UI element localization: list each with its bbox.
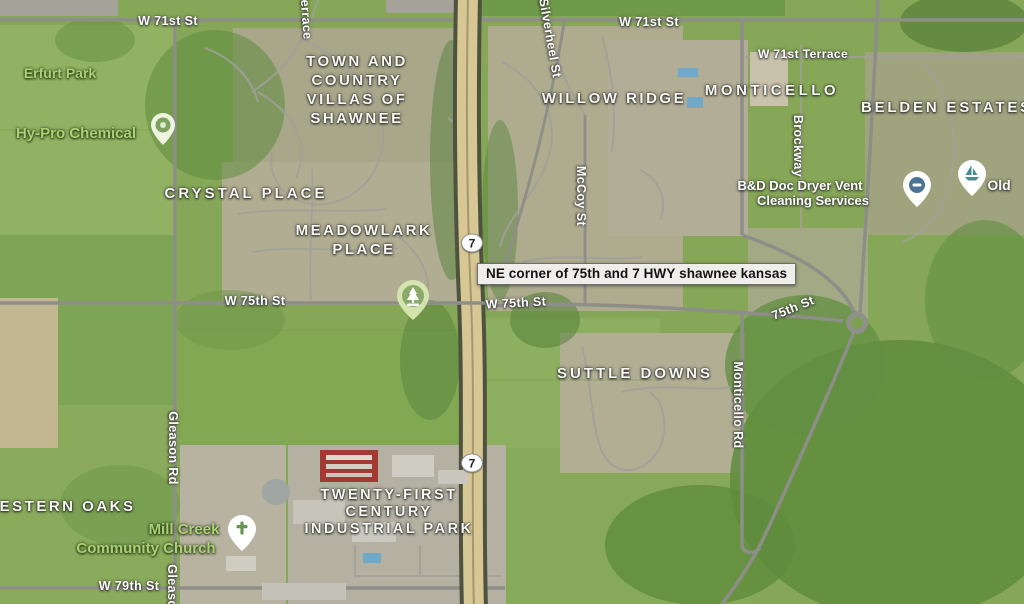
- hy-pro-chemical-pin[interactable]: [150, 112, 176, 151]
- park-pin[interactable]: [396, 279, 430, 326]
- highway-7-shield-south: 7: [461, 454, 483, 473]
- bd-doc-business-pin[interactable]: [902, 170, 932, 213]
- green-dot-pin-icon: [150, 112, 176, 146]
- highway-7-shield-north: 7: [461, 234, 483, 253]
- sailboat-pin-icon: [957, 159, 987, 197]
- business-dot-pin-icon: [902, 170, 932, 208]
- tree-park-pin-icon: [396, 279, 430, 321]
- location-tooltip: NE corner of 75th and 7 HWY shawnee kans…: [477, 263, 796, 285]
- terrain-layer: [0, 0, 1024, 604]
- roundabout: [849, 315, 866, 332]
- satellite-map-canvas[interactable]: TOWN AND COUNTRY VILLAS OF SHAWNEE WILLO…: [0, 0, 1024, 604]
- old-poi-pin[interactable]: [957, 159, 987, 202]
- church-cross-pin-icon: [227, 514, 257, 552]
- mill-creek-church-pin[interactable]: [227, 514, 257, 557]
